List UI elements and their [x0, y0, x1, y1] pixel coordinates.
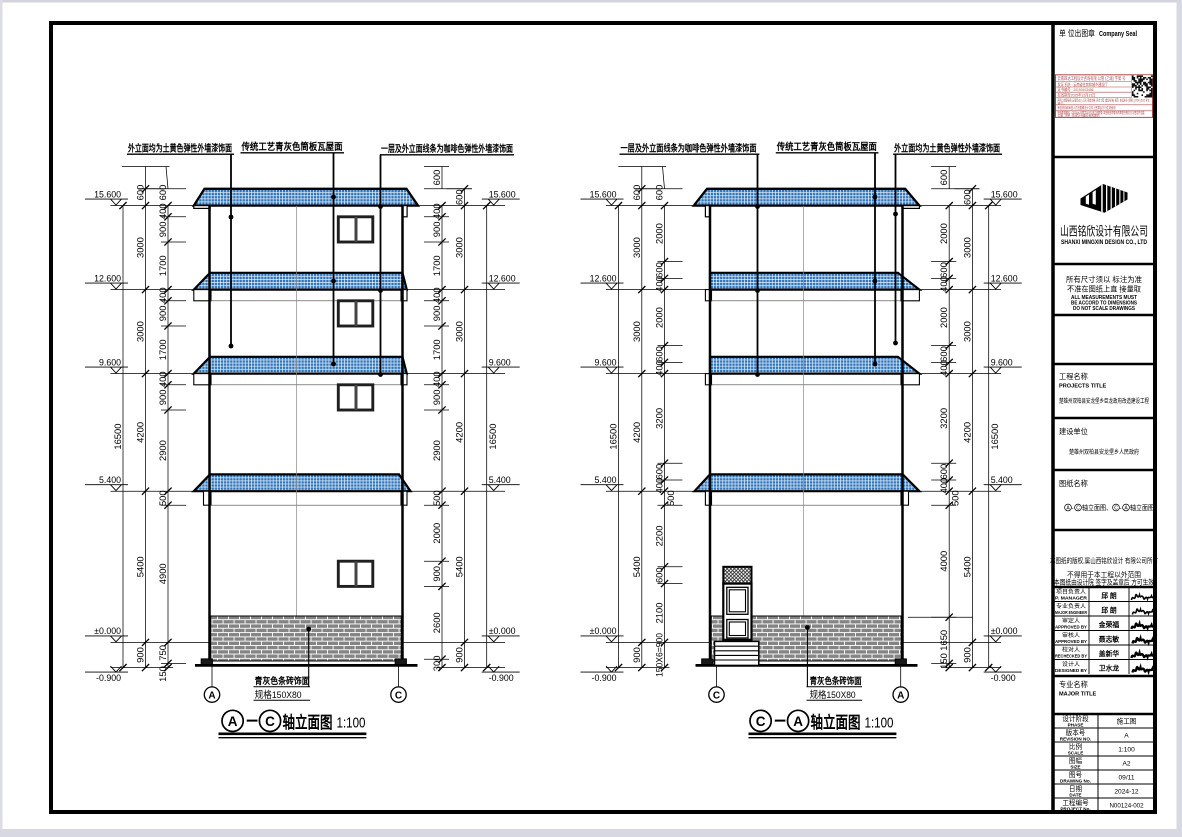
svg-text:公章 ,注明 :资质证书编号有效期内: 公章 ,注明 :资质证书编号有效期内: [1058, 113, 1100, 118]
svg-text:9.600: 9.600: [991, 357, 1013, 367]
svg-text:5400: 5400: [454, 556, 465, 577]
svg-text:A: A: [208, 691, 215, 702]
svg-text:15.600: 15.600: [991, 189, 1018, 199]
svg-text:2000: 2000: [938, 307, 949, 328]
svg-text:DO NOT SCALE DRAWINGS: DO NOT SCALE DRAWINGS: [1073, 306, 1135, 312]
svg-text:600: 600: [135, 185, 146, 201]
svg-text:2000: 2000: [938, 223, 949, 244]
svg-text:3000: 3000: [454, 321, 465, 342]
svg-text:外立面均为土黄色弹性外墙漆饰面: 外立面均为土黄色弹性外墙漆饰面: [127, 143, 232, 155]
svg-text:5.400: 5.400: [489, 475, 511, 485]
svg-text:500: 500: [665, 490, 676, 506]
svg-text:轴立面图: 轴立面图: [1130, 503, 1154, 512]
svg-text:5.400: 5.400: [991, 475, 1013, 485]
svg-text:不准在图纸上直 接量取: 不准在图纸上直 接量取: [1067, 284, 1141, 294]
svg-text:15.600: 15.600: [590, 189, 617, 199]
svg-text:MAJOR TITLE: MAJOR TITLE: [1059, 692, 1097, 698]
svg-text:SHANXI MINGXIN DESIGN CO., LTD: SHANXI MINGXIN DESIGN CO., LTD: [1061, 239, 1147, 246]
svg-text:1700: 1700: [431, 339, 442, 360]
svg-text:本图纸由设计院 签字及盖章后 方可生效: 本图纸由设计院 签字及盖章后 方可生效: [1054, 578, 1154, 587]
svg-text:PROJECTS TITLE: PROJECTS TITLE: [1059, 384, 1107, 390]
svg-text:3200: 3200: [654, 408, 665, 429]
svg-text:APPROVED BY: APPROVED BY: [1055, 624, 1087, 629]
svg-text:2900: 2900: [431, 440, 442, 461]
svg-text:卫水龙: 卫水龙: [1099, 664, 1120, 673]
svg-text:专业负责人: 专业负责人: [1056, 602, 1086, 610]
svg-text:2900: 2900: [157, 440, 168, 461]
svg-text:900: 900: [157, 390, 168, 406]
svg-text:不得用于本工程以外范围: 不得用于本工程以外范围: [1067, 570, 1141, 579]
svg-text:2000: 2000: [431, 523, 442, 544]
svg-text:A: A: [897, 691, 904, 702]
svg-text:500: 500: [157, 490, 168, 506]
svg-text:A: A: [228, 714, 238, 729]
svg-text:轴立面图: 轴立面图: [283, 712, 333, 732]
svg-text:项目负责人: 项目负责人: [1056, 588, 1086, 596]
svg-text:5400: 5400: [631, 556, 642, 577]
svg-text:5400: 5400: [135, 556, 146, 577]
svg-text:12.600: 12.600: [590, 273, 617, 283]
svg-text:施工图: 施工图: [1117, 717, 1137, 726]
svg-text:1700: 1700: [157, 255, 168, 276]
svg-text:3000: 3000: [135, 321, 146, 342]
svg-text:PROJECT No.: PROJECT No.: [1060, 807, 1090, 812]
svg-text:执行。: 执行。: [1058, 100, 1067, 105]
svg-text:±0.000: ±0.000: [991, 626, 1018, 636]
svg-text:工程名称: 工程名称: [1059, 372, 1088, 381]
svg-text:聂志敏: 聂志敏: [1098, 635, 1120, 644]
svg-text:3000: 3000: [961, 237, 972, 258]
svg-text:MAJOR ENGINEER: MAJOR ENGINEER: [1055, 610, 1088, 615]
svg-text:邱 朗: 邱 朗: [1101, 591, 1117, 600]
svg-text:3200: 3200: [938, 408, 949, 429]
svg-text:轴立面图: 轴立面图: [811, 712, 861, 732]
svg-text:600: 600: [454, 189, 465, 205]
svg-text:16500: 16500: [112, 424, 123, 450]
svg-text:图纸名称: 图纸名称: [1059, 479, 1088, 488]
svg-text:16500: 16500: [608, 424, 619, 450]
svg-text:600: 600: [961, 189, 972, 205]
svg-text:外立面均为土黄色弹性外墙漆饰面: 外立面均为土黄色弹性外墙漆饰面: [893, 143, 1000, 155]
svg-text:-: -: [1072, 506, 1074, 512]
svg-text:9.600: 9.600: [594, 357, 616, 367]
svg-text:C: C: [395, 691, 402, 702]
svg-text:APPROVED BY: APPROVED BY: [1055, 639, 1087, 644]
svg-text:150: 150: [938, 653, 949, 669]
svg-text:DESIGNED BY: DESIGNED BY: [1055, 668, 1087, 673]
svg-text:900: 900: [431, 222, 442, 238]
svg-text:金荣福: 金荣福: [1098, 620, 1120, 629]
svg-text:楚雄州双柏县安龙堡乡巨龙政府改造建设工程: 楚雄州双柏县安龙堡乡巨龙政府改造建设工程: [1059, 397, 1149, 405]
svg-text:C: C: [1114, 506, 1118, 512]
svg-text:1:100: 1:100: [337, 715, 366, 732]
svg-text:16500: 16500: [487, 424, 498, 450]
svg-text:专业名称: 专业名称: [1059, 680, 1088, 689]
svg-text:500: 500: [431, 490, 442, 506]
svg-text:-0.900: -0.900: [489, 673, 514, 683]
svg-text:有效期至2025年12月31日: 有效期至2025年12月31日: [1058, 92, 1096, 97]
svg-text:PHASE: PHASE: [1068, 723, 1084, 728]
svg-text:Company Seal: Company Seal: [1099, 29, 1137, 38]
svg-text:900: 900: [157, 222, 168, 238]
svg-text:RECHECKED BY: RECHECKED BY: [1055, 653, 1087, 658]
svg-text:2200: 2200: [654, 526, 665, 547]
svg-text:900: 900: [454, 647, 465, 663]
svg-text:9.600: 9.600: [99, 357, 121, 367]
svg-text:4200: 4200: [961, 422, 972, 443]
svg-text:建设单位: 建设单位: [1059, 427, 1088, 436]
svg-text:设计人: 设计人: [1062, 660, 1080, 668]
svg-text:A: A: [1124, 733, 1129, 740]
svg-text:盖新华: 盖新华: [1099, 649, 1120, 658]
svg-text:校对人: 校对人: [1062, 646, 1080, 654]
svg-text:单 位出图章: 单 位出图章: [1059, 28, 1095, 38]
svg-text:C: C: [265, 714, 275, 729]
svg-text:2600: 2600: [431, 612, 442, 633]
svg-text:1700: 1700: [431, 255, 442, 276]
svg-text:轴立面图、: 轴立面图、: [1082, 503, 1112, 512]
svg-text:12.600: 12.600: [94, 273, 121, 283]
svg-text:证书编号 : 20150103456: 证书编号 : 20150103456: [1058, 87, 1094, 92]
svg-text:2024-12: 2024-12: [1114, 789, 1139, 796]
svg-text:传统工艺青灰色筒板瓦屋面: 传统工艺青灰色筒板瓦屋面: [776, 141, 877, 153]
svg-text:500: 500: [950, 490, 961, 506]
svg-text:本图纸的版权,属山西铭欣设计 有限公司所有: 本图纸的版权,属山西铭欣设计 有限公司所有: [1050, 556, 1158, 565]
svg-text:邱 朗: 邱 朗: [1101, 606, 1117, 615]
svg-text:-0.900: -0.900: [991, 673, 1016, 683]
svg-text:3000: 3000: [631, 237, 642, 258]
svg-text:N00124-002: N00124-002: [1109, 803, 1144, 810]
svg-text:青灰色条砖饰面: 青灰色条砖饰面: [810, 675, 862, 686]
svg-text:2100: 2100: [654, 603, 665, 624]
svg-text:600: 600: [654, 567, 665, 583]
svg-text:12.600: 12.600: [991, 273, 1018, 283]
svg-text:P. MANAGER: P. MANAGER: [1055, 595, 1088, 600]
svg-text:4200: 4200: [454, 422, 465, 443]
svg-text:600: 600: [654, 185, 665, 201]
svg-text:所有尺寸须以 标注为准: 所有尺寸须以 标注为准: [1066, 274, 1142, 284]
svg-text:3000: 3000: [135, 237, 146, 258]
svg-text:发证 机关 : 云南省住房和城乡建设厅: 发证 机关 : 云南省住房和城乡建设厅: [1058, 82, 1108, 87]
svg-text:5.400: 5.400: [594, 475, 616, 485]
svg-text:A: A: [793, 714, 803, 729]
svg-text:900: 900: [157, 306, 168, 322]
svg-text:1:100: 1:100: [865, 715, 894, 732]
svg-text:-0.900: -0.900: [96, 673, 121, 683]
svg-text:A2: A2: [1122, 761, 1130, 768]
svg-text:-0.900: -0.900: [592, 673, 617, 683]
svg-text:一层及外立面线条为咖啡色弹性外墙漆饰面: 一层及外立面线条为咖啡色弹性外墙漆饰面: [621, 143, 757, 155]
svg-text:±0.000: ±0.000: [489, 626, 516, 636]
svg-text:4000: 4000: [938, 551, 949, 572]
svg-text:15.600: 15.600: [94, 189, 121, 199]
svg-text:审定人: 审定人: [1062, 617, 1080, 625]
svg-text:900: 900: [135, 647, 146, 663]
svg-text:审查机构和审查人员在勘察设计文件上签章后方可生效使用: 审查机构和审查人员在勘察设计文件上签章后方可生效使用: [1058, 105, 1116, 110]
svg-text:1:100: 1:100: [1118, 747, 1135, 754]
svg-text:600: 600: [938, 170, 949, 186]
svg-text:750: 750: [157, 645, 168, 661]
svg-text:3000: 3000: [961, 321, 972, 342]
svg-text:600: 600: [654, 262, 665, 278]
svg-text:C: C: [756, 714, 766, 729]
svg-text:规格150X80: 规格150X80: [810, 689, 856, 700]
svg-text:2000: 2000: [654, 307, 665, 328]
svg-text:3000: 3000: [454, 237, 465, 258]
svg-text:声明 : 本图纸经 (云南四达) (人员) 审查合格 ,符合: 声明 : 本图纸经 (云南四达) (人员) 审查合格 ,符合工程 (建设标准) …: [1058, 97, 1150, 102]
svg-text:600: 600: [157, 185, 168, 201]
svg-text:±0.000: ±0.000: [590, 626, 617, 636]
svg-text:900: 900: [431, 306, 442, 322]
svg-text:900: 900: [961, 647, 972, 663]
svg-text:900: 900: [431, 390, 442, 406]
svg-text:DATE: DATE: [1069, 793, 1081, 798]
svg-text:15.600: 15.600: [489, 189, 516, 199]
svg-text:云南四达工程设计咨询有限 公管 (乙级) 字第 号: 云南四达工程设计咨询有限 公管 (乙级) 字第 号: [1058, 75, 1126, 82]
svg-text:C: C: [1076, 506, 1080, 512]
svg-text:900: 900: [431, 566, 442, 582]
svg-text:1650: 1650: [938, 630, 949, 651]
svg-text:600: 600: [631, 185, 642, 201]
svg-text:2000: 2000: [654, 223, 665, 244]
svg-text:SIZE: SIZE: [1070, 765, 1080, 770]
svg-text:150X6=900: 150X6=900: [654, 633, 665, 677]
svg-text:4200: 4200: [631, 422, 642, 443]
svg-text:C: C: [713, 691, 720, 702]
svg-text:山西铭欣设计有限公司: 山西铭欣设计有限公司: [1060, 224, 1148, 239]
svg-text:600: 600: [938, 262, 949, 278]
svg-text:150: 150: [157, 666, 168, 682]
svg-text:±0.000: ±0.000: [94, 626, 121, 636]
svg-text:600: 600: [654, 346, 665, 362]
svg-text:SCALE: SCALE: [1068, 751, 1084, 756]
svg-text:12.600: 12.600: [489, 273, 516, 283]
svg-text:楚雄州双柏县安龙堡乡人民政府: 楚雄州双柏县安龙堡乡人民政府: [1069, 448, 1139, 456]
svg-text:300: 300: [431, 656, 442, 672]
svg-text:1700: 1700: [157, 339, 168, 360]
svg-text:9.600: 9.600: [489, 357, 511, 367]
svg-text:REVISION NO.: REVISION NO.: [1060, 737, 1091, 742]
svg-text:规格150X80: 规格150X80: [255, 689, 302, 700]
svg-text:传统工艺青灰色筒板瓦屋面: 传统工艺青灰色筒板瓦屋面: [241, 141, 343, 153]
svg-text:3000: 3000: [631, 321, 642, 342]
svg-text:5400: 5400: [961, 556, 972, 577]
svg-text:600: 600: [654, 464, 665, 480]
svg-text:5.400: 5.400: [99, 475, 121, 485]
svg-text:-: -: [1120, 506, 1122, 512]
svg-text:审核人: 审核人: [1062, 631, 1080, 639]
svg-text:900: 900: [631, 647, 642, 663]
svg-text:09/11: 09/11: [1118, 775, 1134, 782]
svg-text:16500: 16500: [989, 424, 1000, 450]
svg-text:DRAWING No.: DRAWING No.: [1060, 779, 1091, 784]
svg-text:4200: 4200: [135, 422, 146, 443]
svg-text:一层及外立面线条为咖啡色弹性外墙漆饰面: 一层及外立面线条为咖啡色弹性外墙漆饰面: [381, 143, 513, 155]
svg-text:600: 600: [938, 464, 949, 480]
svg-text:600: 600: [431, 170, 442, 186]
svg-text:4900: 4900: [157, 563, 168, 584]
svg-text:青灰色条砖饰面: 青灰色条砖饰面: [255, 675, 310, 686]
svg-text:600: 600: [938, 346, 949, 362]
